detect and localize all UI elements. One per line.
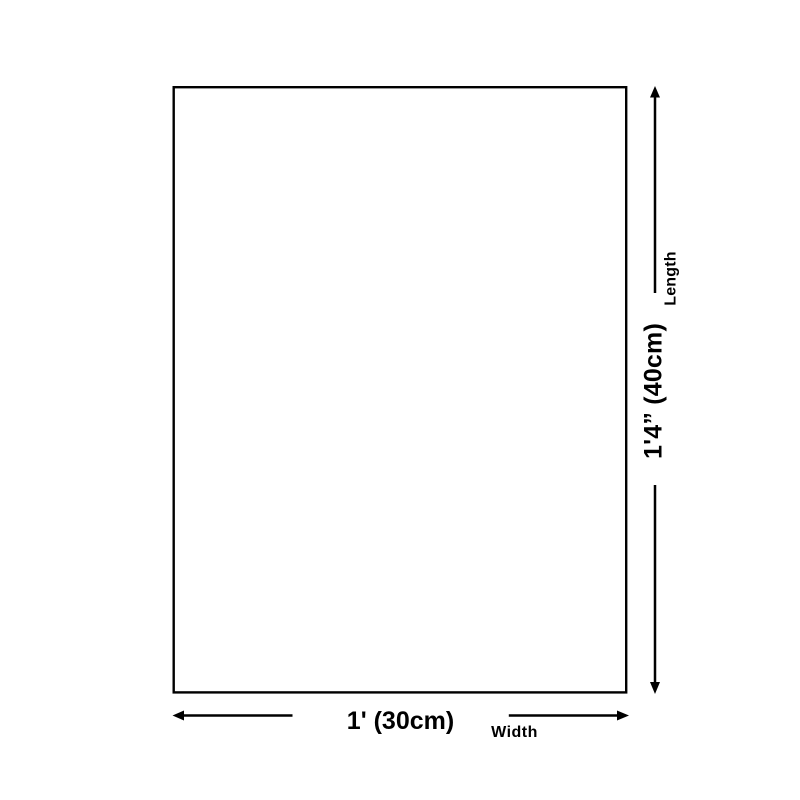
svg-text:Width: Width <box>491 724 538 741</box>
svg-text:1'4” (40cm): 1'4” (40cm) <box>640 323 668 459</box>
svg-text:1' (30cm): 1' (30cm) <box>347 707 454 735</box>
svg-text:Length: Length <box>663 251 680 306</box>
